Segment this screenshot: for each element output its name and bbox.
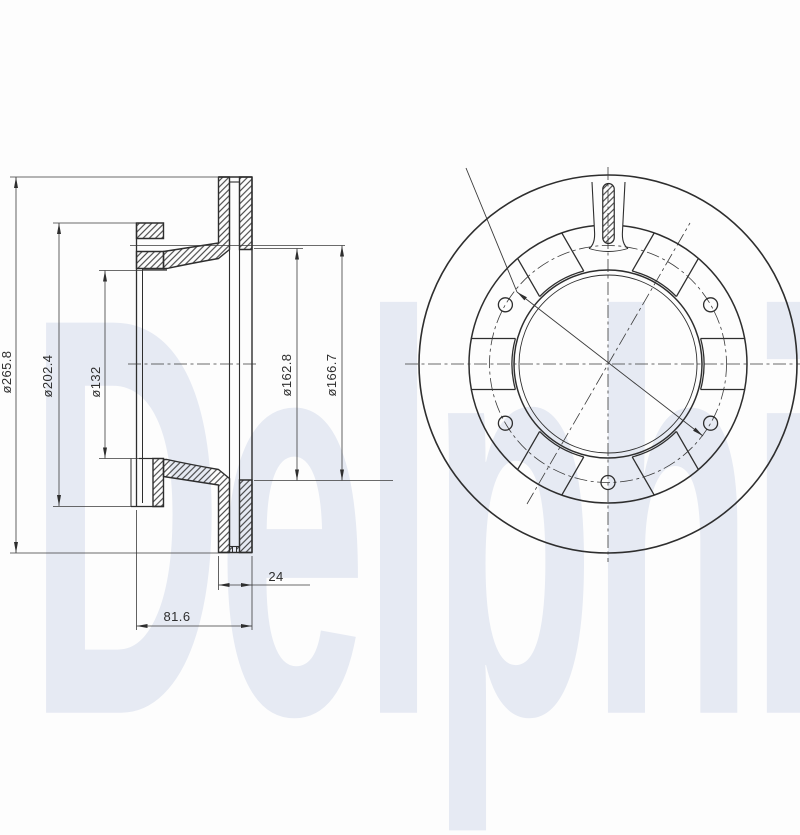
dim-label-disc-thickness: 24 [268,569,283,584]
hub-window [518,233,584,297]
hatch-vent-foot-left [230,547,233,553]
hatch-right-plate-bottom [240,480,253,553]
hatch-right-plate-top [240,177,253,250]
slot-hatched-capsule [603,184,615,244]
dim-label-bore-diameter: ø132 [88,366,103,397]
bolt-hole [498,298,512,312]
technical-drawing-page: Delphi [0,0,800,800]
front-view [405,167,800,562]
bolt-hole [704,416,718,430]
hub-window [632,431,698,495]
hatch-flange-bottom-strip [153,459,164,507]
brake-disc-drawing: ø265.8 ø202.4 ø132 ø162.8 ø166.7 24 81.6 [0,0,800,800]
hatch-flange-top-upper [137,223,164,239]
dim-label-overall-width: 81.6 [164,609,191,624]
diagonal-centerline [527,223,690,504]
dim-label-bolt-circle-diameter: ø166.7 [324,354,339,397]
dimension-arrows [14,177,344,628]
hatch-left-plate-hat-bottom [164,460,230,553]
hatch-left-plate-hat-top [164,177,230,269]
bolt-hole [704,298,718,312]
hub-window [632,233,698,297]
hatch-vent-foot-right [237,547,240,553]
dim-label-vent-inner-diameter: ø162.8 [279,354,294,397]
section-view: ø265.8 ø202.4 ø132 ø162.8 ø166.7 24 81.6 [0,177,393,630]
dim-label-flange-diameter: ø202.4 [40,355,55,398]
hatch-flange-top-lower [137,252,164,269]
dim-label-outer-diameter: ø265.8 [0,351,14,394]
